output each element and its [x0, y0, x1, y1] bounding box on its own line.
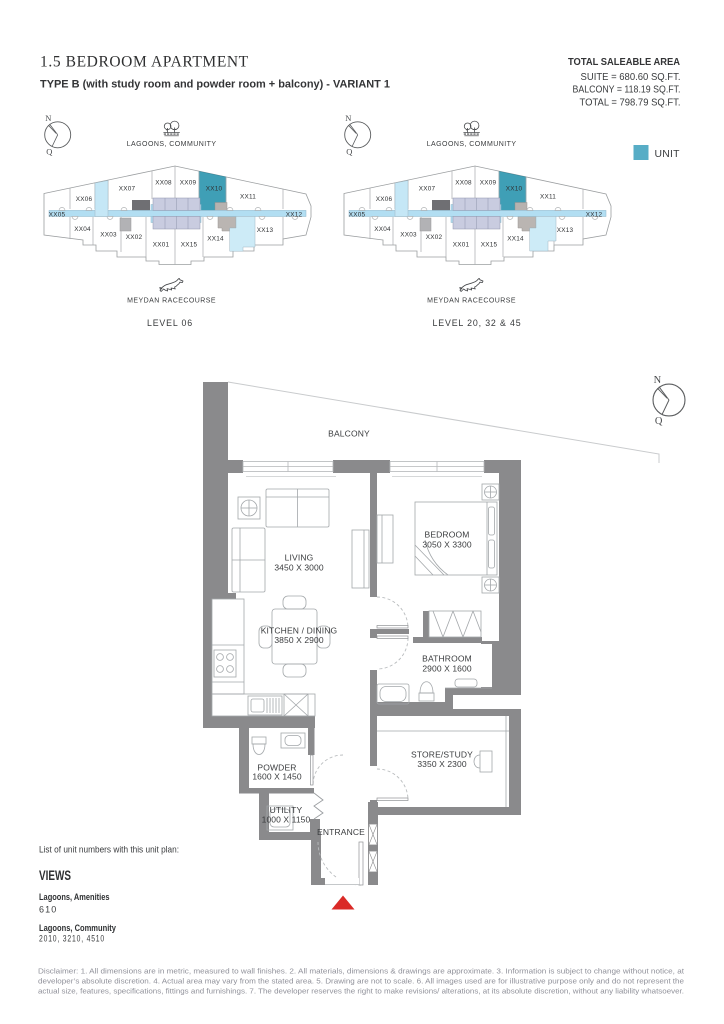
svg-text:Lagoons, Amenities: Lagoons, Amenities — [39, 892, 110, 902]
svg-text:610: 610 — [39, 905, 57, 915]
svg-text:TOTAL = 798.79 SQ.FT.: TOTAL = 798.79 SQ.FT. — [580, 97, 681, 108]
svg-text:3050 X 3300: 3050 X 3300 — [422, 539, 471, 549]
svg-text:1000 X 1150: 1000 X 1150 — [262, 815, 311, 825]
svg-text:2010, 3210, 4510: 2010, 3210, 4510 — [39, 934, 105, 944]
svg-text:LEVEL 06: LEVEL 06 — [147, 318, 193, 328]
svg-text:BALCONY: BALCONY — [328, 429, 370, 439]
svg-text:BALCONY = 118.19 SQ.FT.: BALCONY = 118.19 SQ.FT. — [573, 85, 681, 96]
svg-text:3450 X 3000: 3450 X 3000 — [274, 563, 323, 573]
svg-text:1600 X 1450: 1600 X 1450 — [252, 772, 301, 782]
svg-text:1.5 BEDROOM APARTMENT: 1.5 BEDROOM APARTMENT — [40, 53, 249, 70]
svg-text:SUITE = 680.60 SQ.FT.: SUITE = 680.60 SQ.FT. — [581, 72, 681, 83]
svg-text:STORE/STUDY: STORE/STUDY — [411, 750, 473, 760]
svg-text:Disclaimer: 1. All dimensions: Disclaimer: 1. All dimensions are in met… — [38, 966, 685, 975]
svg-text:UTILITY: UTILITY — [270, 805, 303, 815]
svg-text:developer’s absolute discretio: developer’s absolute discretion. 4. Actu… — [38, 976, 684, 985]
svg-text:TOTAL SALEABLE AREA: TOTAL SALEABLE AREA — [568, 57, 681, 68]
svg-text:2900 X 1600: 2900 X 1600 — [422, 663, 471, 673]
svg-text:BEDROOM: BEDROOM — [425, 529, 470, 539]
svg-text:BATHROOM: BATHROOM — [422, 654, 472, 664]
svg-text:ENTRANCE: ENTRANCE — [317, 827, 365, 837]
svg-text:VIEWS: VIEWS — [39, 868, 71, 883]
svg-text:3850 X 2900: 3850 X 2900 — [274, 635, 323, 645]
svg-text:UNIT: UNIT — [655, 149, 681, 160]
svg-text:List of unit numbers with this: List of unit numbers with this unit plan… — [39, 844, 179, 854]
svg-text:LEVEL 20, 32 & 45: LEVEL 20, 32 & 45 — [433, 318, 522, 328]
svg-text:3350 X 2300: 3350 X 2300 — [417, 759, 466, 769]
svg-text:TYPE B (with study room and po: TYPE B (with study room and powder room … — [40, 79, 390, 91]
svg-text:actual size, features, specifi: actual size, features, specifications, f… — [38, 986, 684, 995]
svg-text:Lagoons, Community: Lagoons, Community — [39, 923, 116, 933]
svg-text:LIVING: LIVING — [285, 553, 314, 563]
